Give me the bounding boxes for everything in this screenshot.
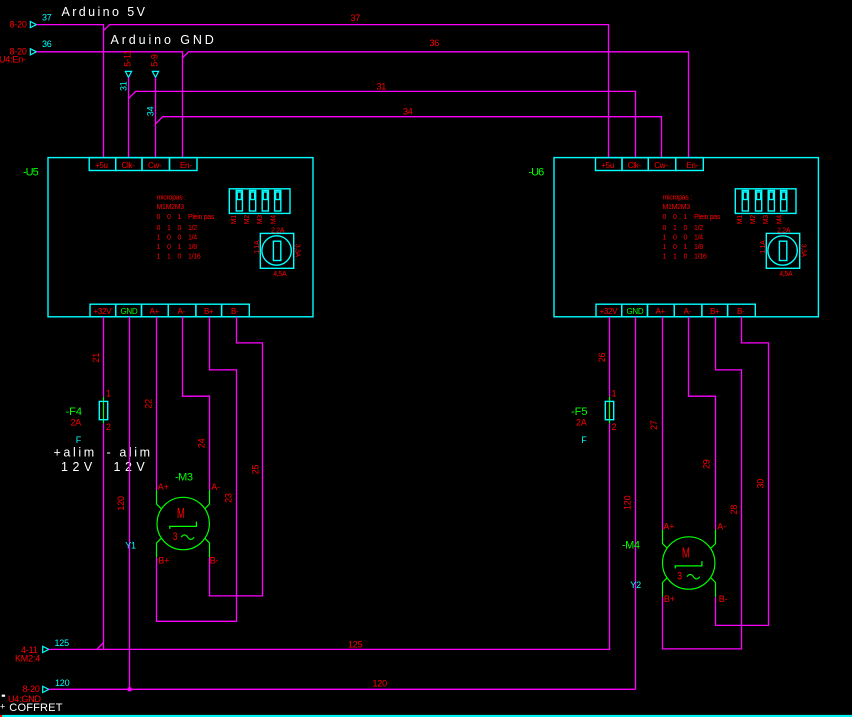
svg-text:F: F [76, 435, 82, 445]
svg-text:2,2A: 2,2A [271, 227, 285, 234]
svg-text:31: 31 [118, 81, 128, 91]
svg-text:-U6: -U6 [529, 167, 545, 179]
svg-text:GND: GND [627, 307, 644, 316]
svg-text:120: 120 [623, 495, 633, 510]
svg-text:+5u: +5u [601, 161, 614, 170]
svg-text:Arduino GND: Arduino GND [111, 33, 217, 47]
svg-text:8-20: 8-20 [23, 684, 40, 694]
svg-text:Clk-: Clk- [122, 161, 136, 170]
svg-text:B-: B- [737, 307, 745, 316]
svg-text:-U5: -U5 [23, 167, 39, 179]
svg-text:4,5A: 4,5A [273, 271, 287, 278]
svg-text:Cw-: Cw- [654, 161, 668, 170]
svg-text:-F5: -F5 [571, 406, 588, 418]
svg-text:36: 36 [430, 38, 440, 48]
svg-text:23: 23 [224, 493, 234, 503]
svg-text:A+: A+ [656, 307, 666, 316]
svg-text:B+: B+ [158, 556, 169, 566]
svg-text:Y2: Y2 [630, 580, 641, 590]
svg-text:5-11: 5-11 [123, 50, 133, 67]
svg-text:27: 27 [649, 420, 659, 430]
svg-text:F: F [581, 435, 587, 445]
svg-text:12V: 12V [114, 460, 150, 474]
svg-text:M: M [177, 505, 185, 522]
svg-text:125: 125 [348, 640, 363, 650]
svg-text:U4:En-: U4:En- [0, 54, 26, 64]
svg-text:26: 26 [597, 352, 607, 362]
svg-text:+5u: +5u [95, 161, 108, 170]
svg-text:B+: B+ [664, 594, 675, 604]
svg-text:B-: B- [231, 307, 239, 316]
svg-text:M1: M1 [231, 215, 238, 225]
svg-text:B+: B+ [204, 307, 214, 316]
svg-text:2A: 2A [71, 418, 82, 428]
svg-text:COFFRET: COFFRET [9, 702, 62, 714]
svg-text:Clk-: Clk- [628, 161, 642, 170]
svg-text:30: 30 [756, 479, 766, 489]
svg-text:A-: A- [178, 307, 186, 316]
svg-text:Y1: Y1 [125, 540, 136, 550]
svg-text:GND: GND [121, 307, 138, 316]
svg-text:25: 25 [251, 465, 261, 475]
svg-text:M3: M3 [763, 215, 770, 225]
svg-text:1: 1 [106, 389, 111, 399]
svg-text:37: 37 [351, 13, 361, 23]
svg-text:125: 125 [55, 638, 70, 648]
svg-text:4,5A: 4,5A [779, 271, 793, 278]
svg-text:B-: B- [210, 556, 219, 566]
svg-text:3: 3 [173, 531, 178, 543]
svg-text:120: 120 [373, 679, 388, 689]
svg-text:-M3: -M3 [175, 472, 193, 484]
svg-text:3,3A: 3,3A [293, 244, 300, 258]
svg-text:micropas :: micropas : [663, 195, 693, 202]
svg-text:5-9: 5-9 [149, 54, 159, 67]
svg-text:8-20: 8-20 [10, 19, 27, 29]
svg-text:En-: En- [180, 161, 192, 170]
svg-text:B-: B- [719, 594, 728, 604]
svg-text:KM2:4: KM2:4 [15, 654, 40, 664]
svg-text:A-: A- [211, 482, 220, 492]
svg-text:+alim: +alim [54, 445, 97, 459]
svg-text:A+: A+ [158, 482, 169, 492]
svg-text:3,3A: 3,3A [799, 244, 806, 258]
svg-text:-M4: -M4 [622, 540, 640, 552]
svg-text:M2: M2 [750, 215, 757, 225]
svg-text:A-: A- [684, 307, 692, 316]
svg-text:36: 36 [42, 39, 52, 49]
svg-text:2: 2 [612, 422, 617, 432]
svg-text:28: 28 [729, 505, 739, 515]
svg-text:24: 24 [196, 438, 206, 448]
svg-text:1: 1 [612, 389, 617, 399]
svg-text:120: 120 [116, 496, 126, 511]
svg-text:A+: A+ [150, 307, 160, 316]
svg-text:31: 31 [377, 81, 387, 91]
svg-text:12V: 12V [61, 460, 97, 474]
svg-text:+32V: +32V [600, 307, 619, 316]
svg-text:B+: B+ [710, 307, 720, 316]
svg-text:2A: 2A [576, 418, 587, 428]
svg-text:M1: M1 [737, 215, 744, 225]
svg-text:1,1A: 1,1A [760, 240, 767, 254]
svg-text:2,2A: 2,2A [777, 227, 791, 234]
svg-text:2: 2 [106, 422, 111, 432]
svg-text:A-: A- [717, 522, 726, 532]
svg-text:M1M2M3: M1M2M3 [663, 204, 691, 211]
svg-text:M1M2M3: M1M2M3 [157, 204, 185, 211]
svg-text:+: + [0, 702, 5, 712]
svg-text:21: 21 [91, 353, 101, 363]
svg-text:Cw-: Cw- [148, 161, 162, 170]
svg-text:-F4: -F4 [66, 406, 83, 418]
svg-text:1,1A: 1,1A [254, 240, 261, 254]
svg-text:En-: En- [686, 161, 698, 170]
svg-text:micropas :: micropas : [157, 195, 187, 202]
svg-text:M4: M4 [776, 215, 783, 225]
svg-text:M3: M3 [257, 215, 264, 225]
svg-text:37: 37 [42, 13, 52, 23]
svg-text:22: 22 [143, 399, 153, 409]
svg-text:34: 34 [145, 106, 155, 116]
svg-text:M4: M4 [270, 215, 277, 225]
svg-text:A+: A+ [663, 522, 674, 532]
svg-text:120: 120 [55, 678, 70, 688]
svg-text:29: 29 [702, 459, 712, 469]
svg-text:+32V: +32V [94, 307, 113, 316]
svg-text:M2: M2 [244, 215, 251, 225]
svg-text:Arduino 5V: Arduino 5V [62, 5, 148, 19]
svg-text:3: 3 [677, 571, 682, 583]
svg-text:34: 34 [403, 106, 413, 116]
svg-text:M: M [682, 545, 690, 562]
